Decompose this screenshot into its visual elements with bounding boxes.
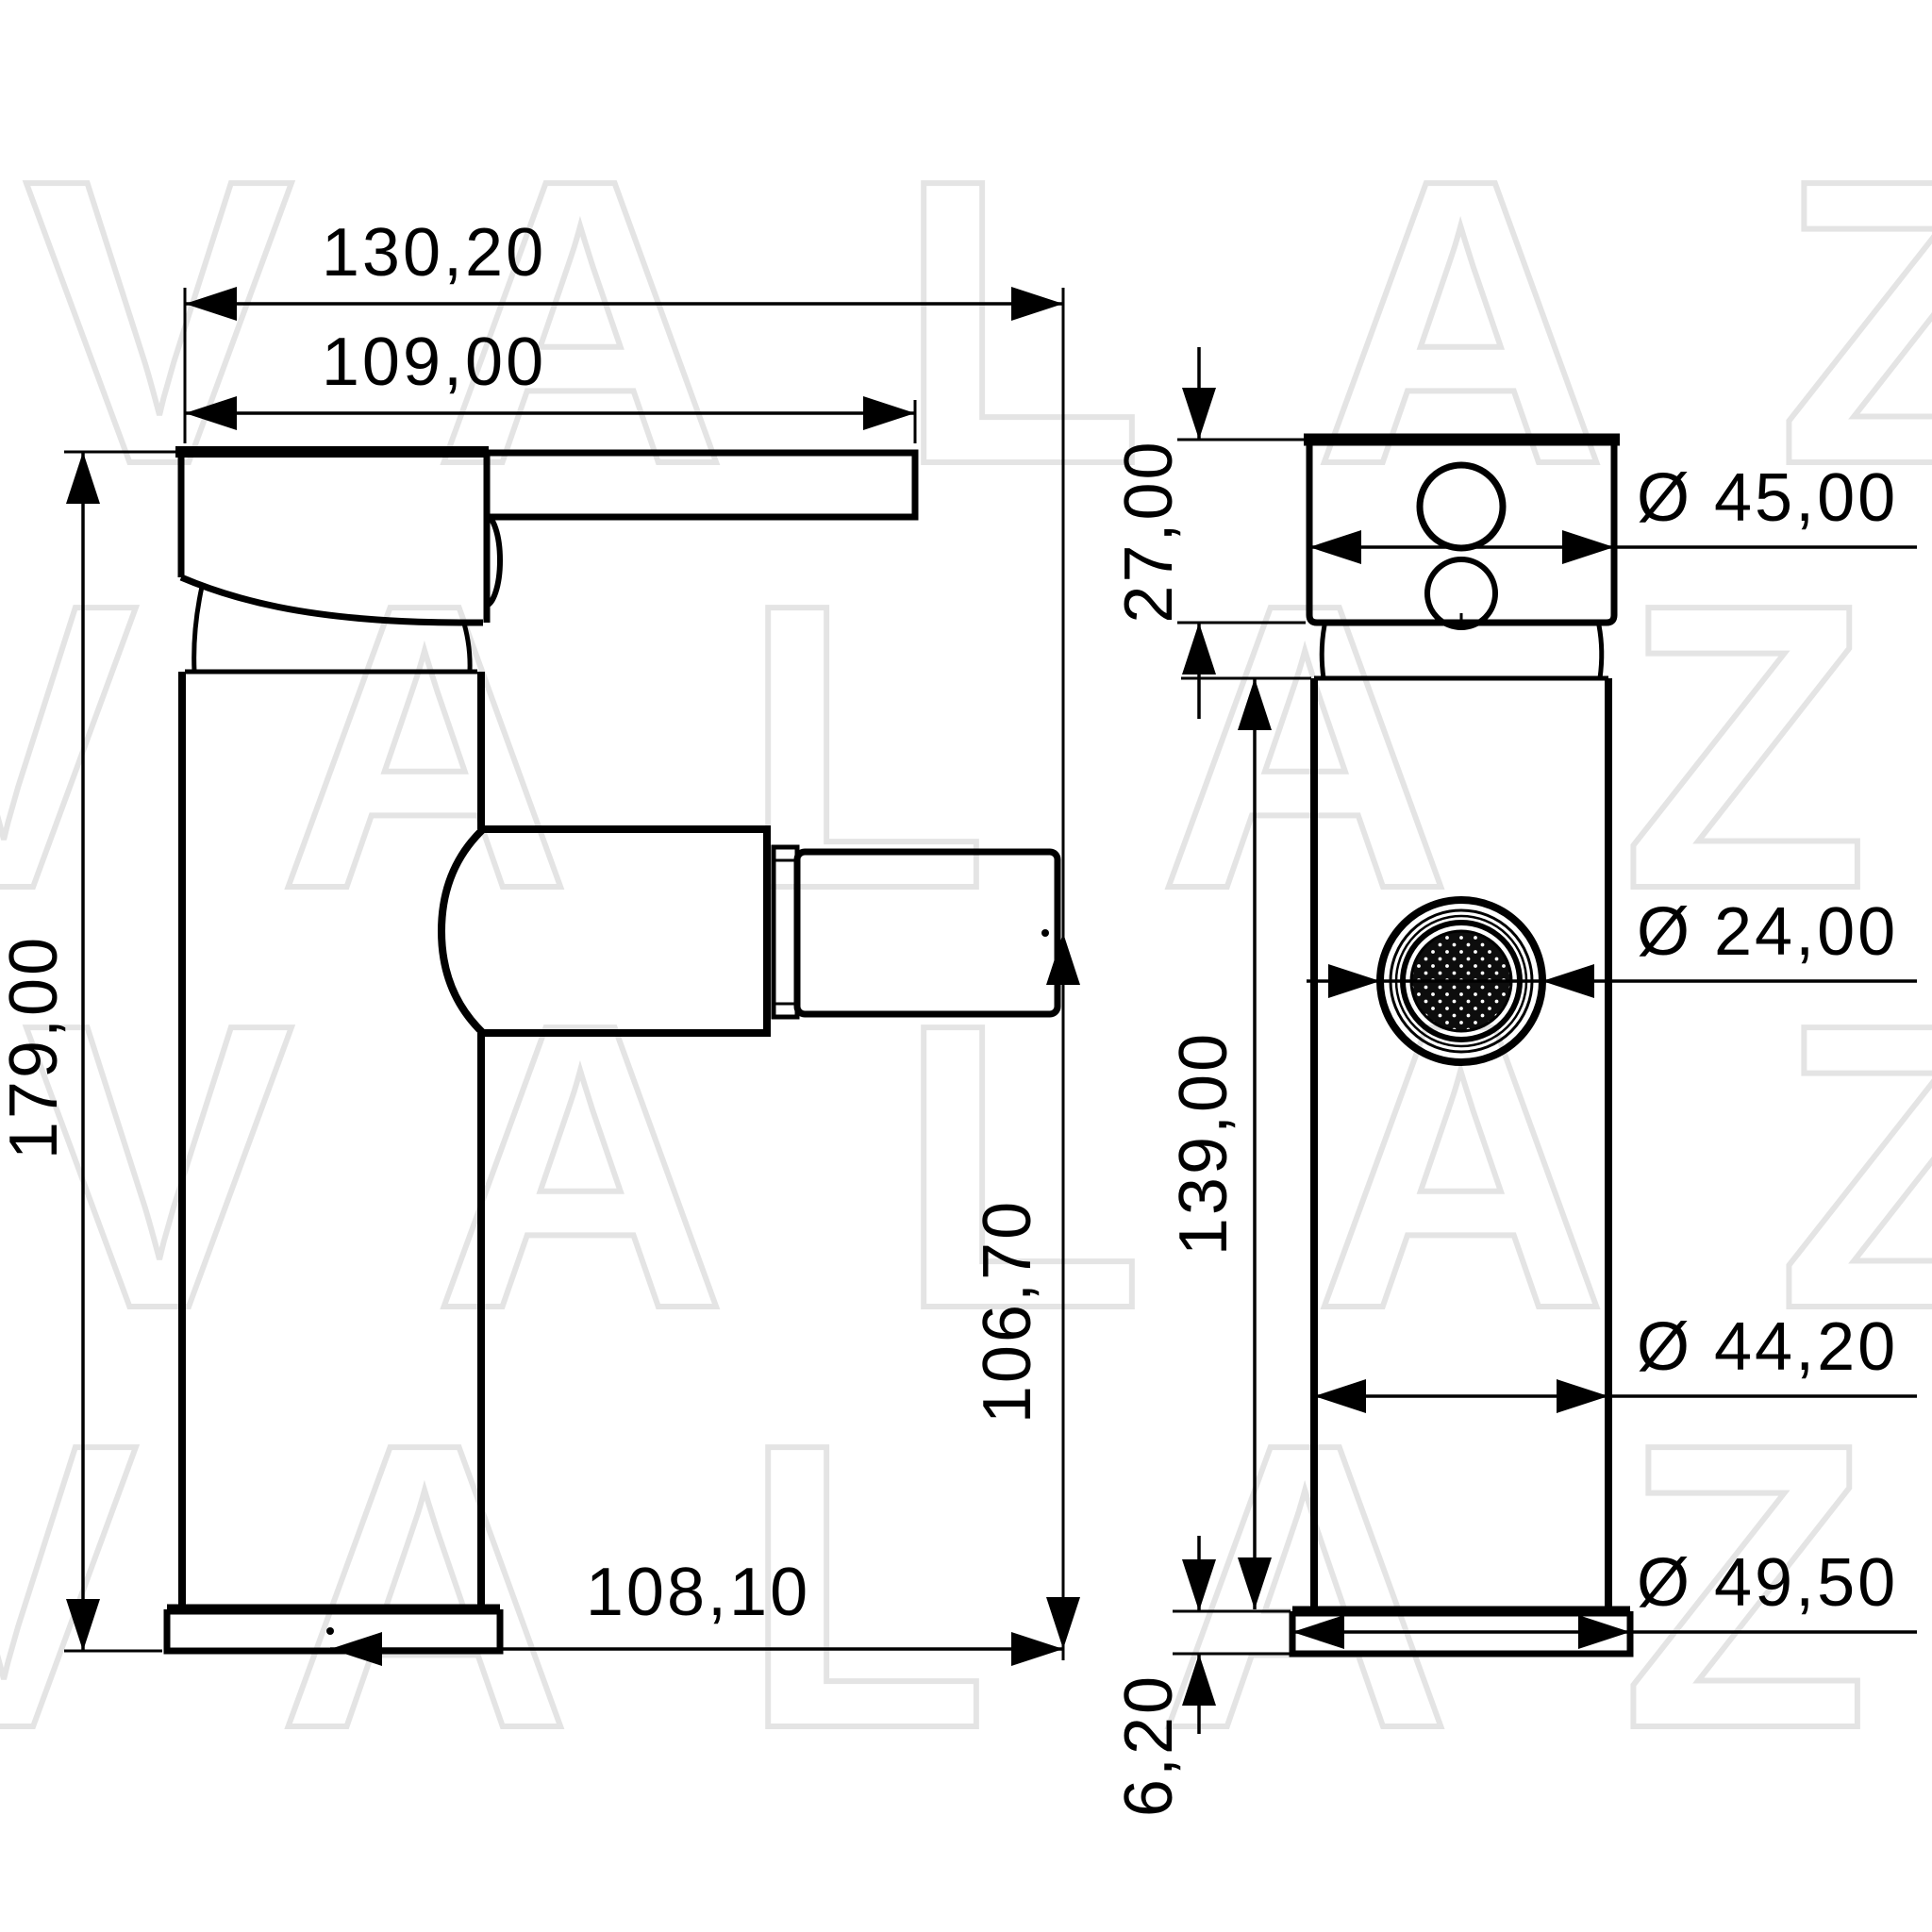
center-axis-mark (326, 1627, 334, 1635)
dim-label-handle-height: 27,00 (1111, 439, 1187, 623)
dim-label-body-diameter: Ø 44,20 (1637, 1309, 1898, 1385)
dim-label-total-height: 179,00 (0, 935, 72, 1159)
dim-label-spout-reach: 108,10 (586, 1555, 810, 1630)
dim-label-body-height: 139,00 (1166, 1031, 1241, 1256)
dim-label-base-height: 6,20 (1111, 1674, 1187, 1817)
dim-label-handle-diameter: Ø 45,00 (1637, 460, 1898, 536)
front-neck-right-edge (1599, 625, 1602, 678)
dim-label-lever-length: 109,00 (322, 325, 546, 400)
dim-label-total-length: 130,20 (322, 215, 546, 291)
side-aerator-axis-mark (1041, 929, 1049, 937)
drawing-page: VALAZ VALAZ VALAZ VALAZ (0, 0, 1932, 1932)
dim-label-base-diameter: Ø 49,50 (1637, 1545, 1898, 1621)
front-neck-left-edge (1322, 625, 1324, 678)
dim-label-aerator-diameter: Ø 24,00 (1637, 894, 1898, 970)
technical-drawing-canvas: VALAZ VALAZ VALAZ VALAZ (0, 0, 1932, 1932)
dim-label-outlet-height: 106,70 (970, 1199, 1045, 1424)
